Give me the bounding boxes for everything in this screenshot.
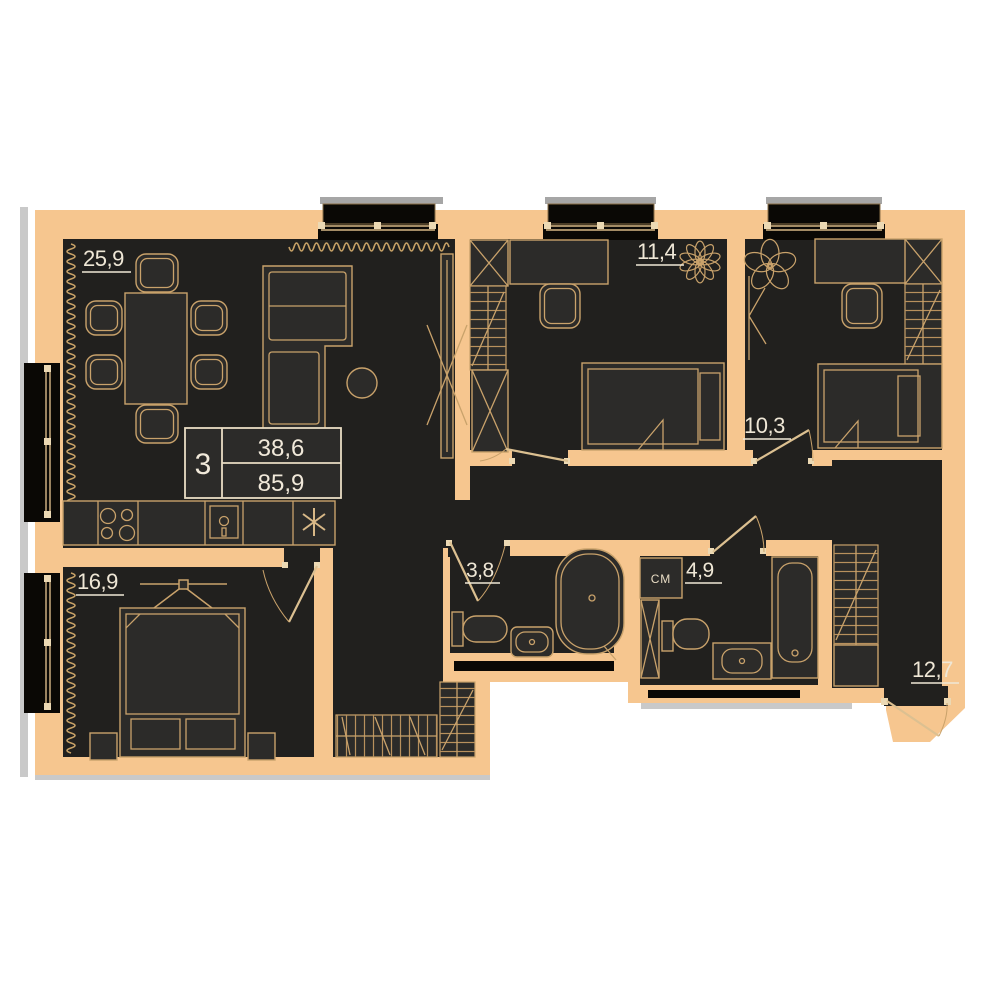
apartment-info-box: 3 38,6 85,9 (185, 428, 341, 498)
floor-plan: 3 38,6 85,9 25,9 11,4 10,3 16,9 3,8 4,9 … (0, 0, 1000, 1000)
bathtub-icon (556, 549, 624, 660)
wardrobe-icon (470, 240, 508, 286)
side-window-living (24, 363, 60, 522)
chair-icon (136, 254, 178, 292)
desk (815, 239, 918, 283)
wardrobe-icon (472, 370, 508, 452)
corridor-wardrobe-icon (834, 545, 878, 645)
floor-plan-page: 3 38,6 85,9 25,9 11,4 10,3 16,9 3,8 4,9 … (0, 0, 1000, 1000)
chair-icon (191, 355, 227, 389)
nightstand (90, 733, 117, 760)
single-bed (818, 364, 942, 448)
shelving-icon (905, 284, 942, 364)
double-bed (120, 608, 245, 757)
balcony-window-bedroom-right (763, 204, 885, 240)
label-bedroom-top-right: 10,3 (744, 413, 785, 438)
desk (510, 240, 608, 284)
label-washing-machine: СМ (651, 572, 672, 586)
rooms-count: 3 (195, 448, 212, 481)
vent-strip-bathroom-large (648, 690, 800, 698)
duct-shaft (641, 600, 659, 678)
toilet-icon (662, 619, 709, 651)
chair-icon (86, 355, 122, 389)
entrance-door-opening (884, 686, 948, 706)
shelving-icon (470, 286, 506, 370)
wardrobe-shelves-icon (440, 682, 475, 757)
chair-icon (191, 301, 227, 335)
toilet-icon (452, 612, 507, 646)
total-area-value: 85,9 (258, 470, 305, 497)
desk-chair-icon (842, 284, 882, 328)
coffee-table (347, 368, 377, 398)
nightstand (248, 733, 275, 760)
label-living-area: 25,9 (83, 246, 124, 271)
label-bathroom-large: 4,9 (686, 559, 714, 582)
sink-icon (511, 627, 553, 657)
label-bathroom-small: 3,8 (466, 559, 494, 582)
side-window-bedroom-left (24, 573, 60, 713)
kitchen-counter (63, 501, 335, 545)
wardrobe-hangers-icon (336, 715, 437, 757)
chair-icon (86, 301, 122, 335)
door-opening-bathroom-small (448, 538, 510, 557)
chair-icon (136, 405, 178, 443)
balcony-window-living (318, 204, 438, 240)
desk-chair-icon (540, 284, 580, 328)
living-area-value: 38,6 (258, 435, 305, 462)
dining-table (125, 293, 187, 404)
sink-icon (713, 643, 771, 679)
label-bedroom-bottom-left: 16,9 (77, 569, 118, 594)
wardrobe-icon (905, 239, 942, 284)
balcony-window-bedroom-middle (543, 204, 658, 240)
corridor-cabinet (834, 645, 878, 686)
vent-strip-bathroom-small (454, 661, 614, 671)
single-bed (582, 363, 724, 450)
bathtub-icon (772, 557, 818, 678)
label-bedroom-top-middle: 11,4 (637, 239, 676, 264)
label-hall: 12,7 (912, 657, 953, 682)
